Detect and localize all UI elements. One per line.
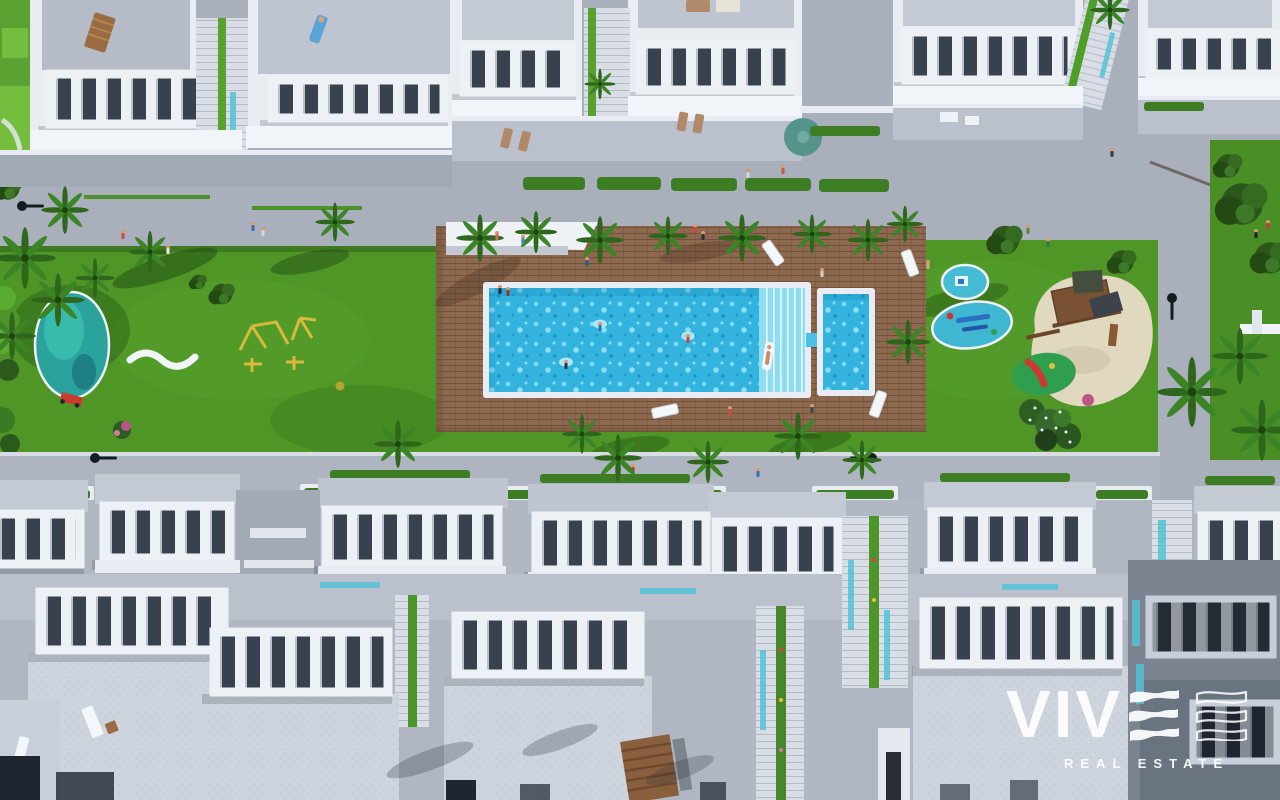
pergola-balustrade (92, 502, 234, 570)
staircase (842, 516, 908, 688)
spring-toy (336, 382, 345, 391)
pergola-balustrade (452, 42, 576, 104)
brand-wordmark: VIV (1006, 689, 1123, 741)
right-walkway (1150, 140, 1280, 461)
pergola-balustrade (1138, 30, 1280, 86)
pergola-balustrade (894, 28, 1076, 92)
brand-flag-waves-icon (1195, 689, 1249, 741)
pergola-balustrade (524, 512, 710, 582)
stair-tower (878, 728, 910, 800)
hedge-planters (523, 177, 889, 192)
brand-logo: VIV REAL ESTATE (1006, 687, 1249, 771)
pergola-balustrade (0, 510, 84, 576)
flower-bush (113, 421, 131, 439)
pool-steps (759, 288, 805, 392)
main-pool (483, 282, 811, 398)
aerial-render: VIV REAL ESTATE (0, 0, 1280, 800)
kids-pool (817, 288, 875, 396)
brand-e-waves-icon (1128, 689, 1180, 741)
patio-parasol (784, 118, 822, 156)
brand-tagline: REAL ESTATE (1064, 756, 1249, 771)
pergola-balustrade (314, 506, 502, 576)
pergola-balustrade (202, 628, 392, 704)
pergola-balustrade (444, 612, 644, 686)
pergola-balustrade (920, 508, 1092, 578)
pergola-balustrade (912, 598, 1122, 676)
brand-logo-row: VIV (1006, 687, 1249, 743)
roof-terrace (258, 0, 450, 74)
pergola-balustrade (28, 588, 228, 662)
staircase (395, 595, 429, 727)
pergola-balustrade (628, 40, 794, 102)
roof-terrace (42, 0, 190, 70)
staircase (756, 606, 804, 800)
pergola-balustrade (260, 76, 448, 130)
pool-deck (430, 222, 926, 432)
